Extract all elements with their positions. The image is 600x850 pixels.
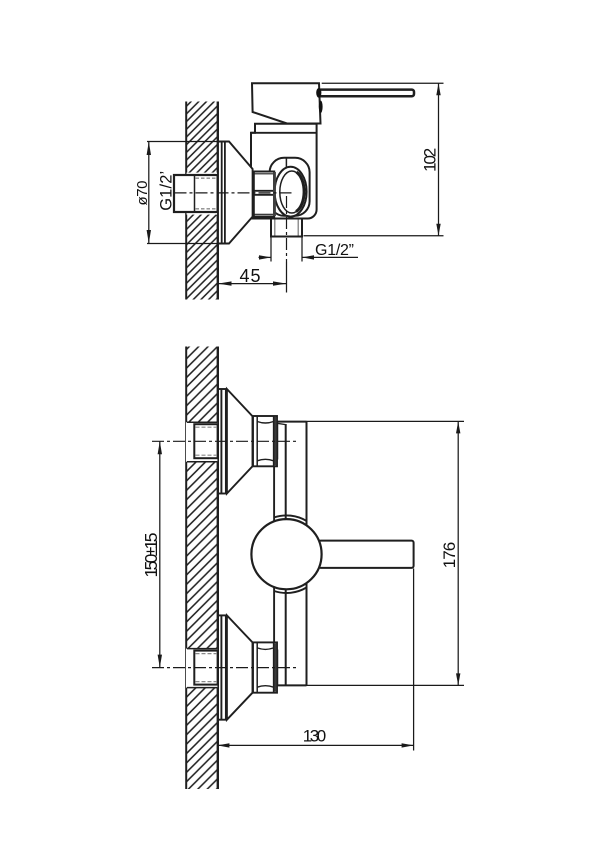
svg-text:ø70: ø70 bbox=[134, 181, 151, 206]
svg-text:130: 130 bbox=[303, 727, 327, 746]
svg-text:G1/2’: G1/2’ bbox=[157, 171, 175, 211]
svg-text:G1/2”: G1/2” bbox=[315, 242, 354, 259]
svg-text:45: 45 bbox=[240, 266, 261, 286]
svg-text:102: 102 bbox=[421, 148, 440, 172]
svg-text:150±15: 150±15 bbox=[141, 533, 161, 578]
svg-text:176: 176 bbox=[440, 542, 459, 569]
